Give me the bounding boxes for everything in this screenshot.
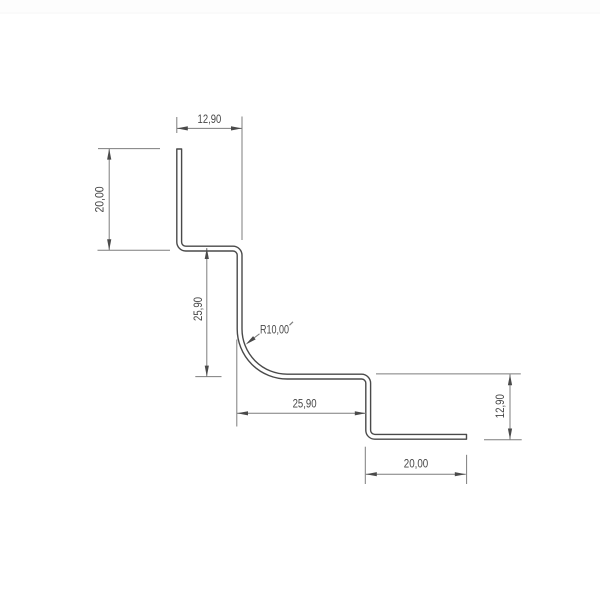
svg-text:20,00: 20,00	[404, 457, 429, 471]
svg-text:12,90: 12,90	[198, 112, 222, 126]
svg-text:R10,00: R10,00	[260, 323, 289, 337]
svg-text:25,90: 25,90	[293, 396, 317, 410]
svg-text:20,00: 20,00	[93, 186, 107, 212]
svg-text:25,90: 25,90	[191, 297, 205, 321]
svg-text:12,90: 12,90	[493, 394, 507, 418]
